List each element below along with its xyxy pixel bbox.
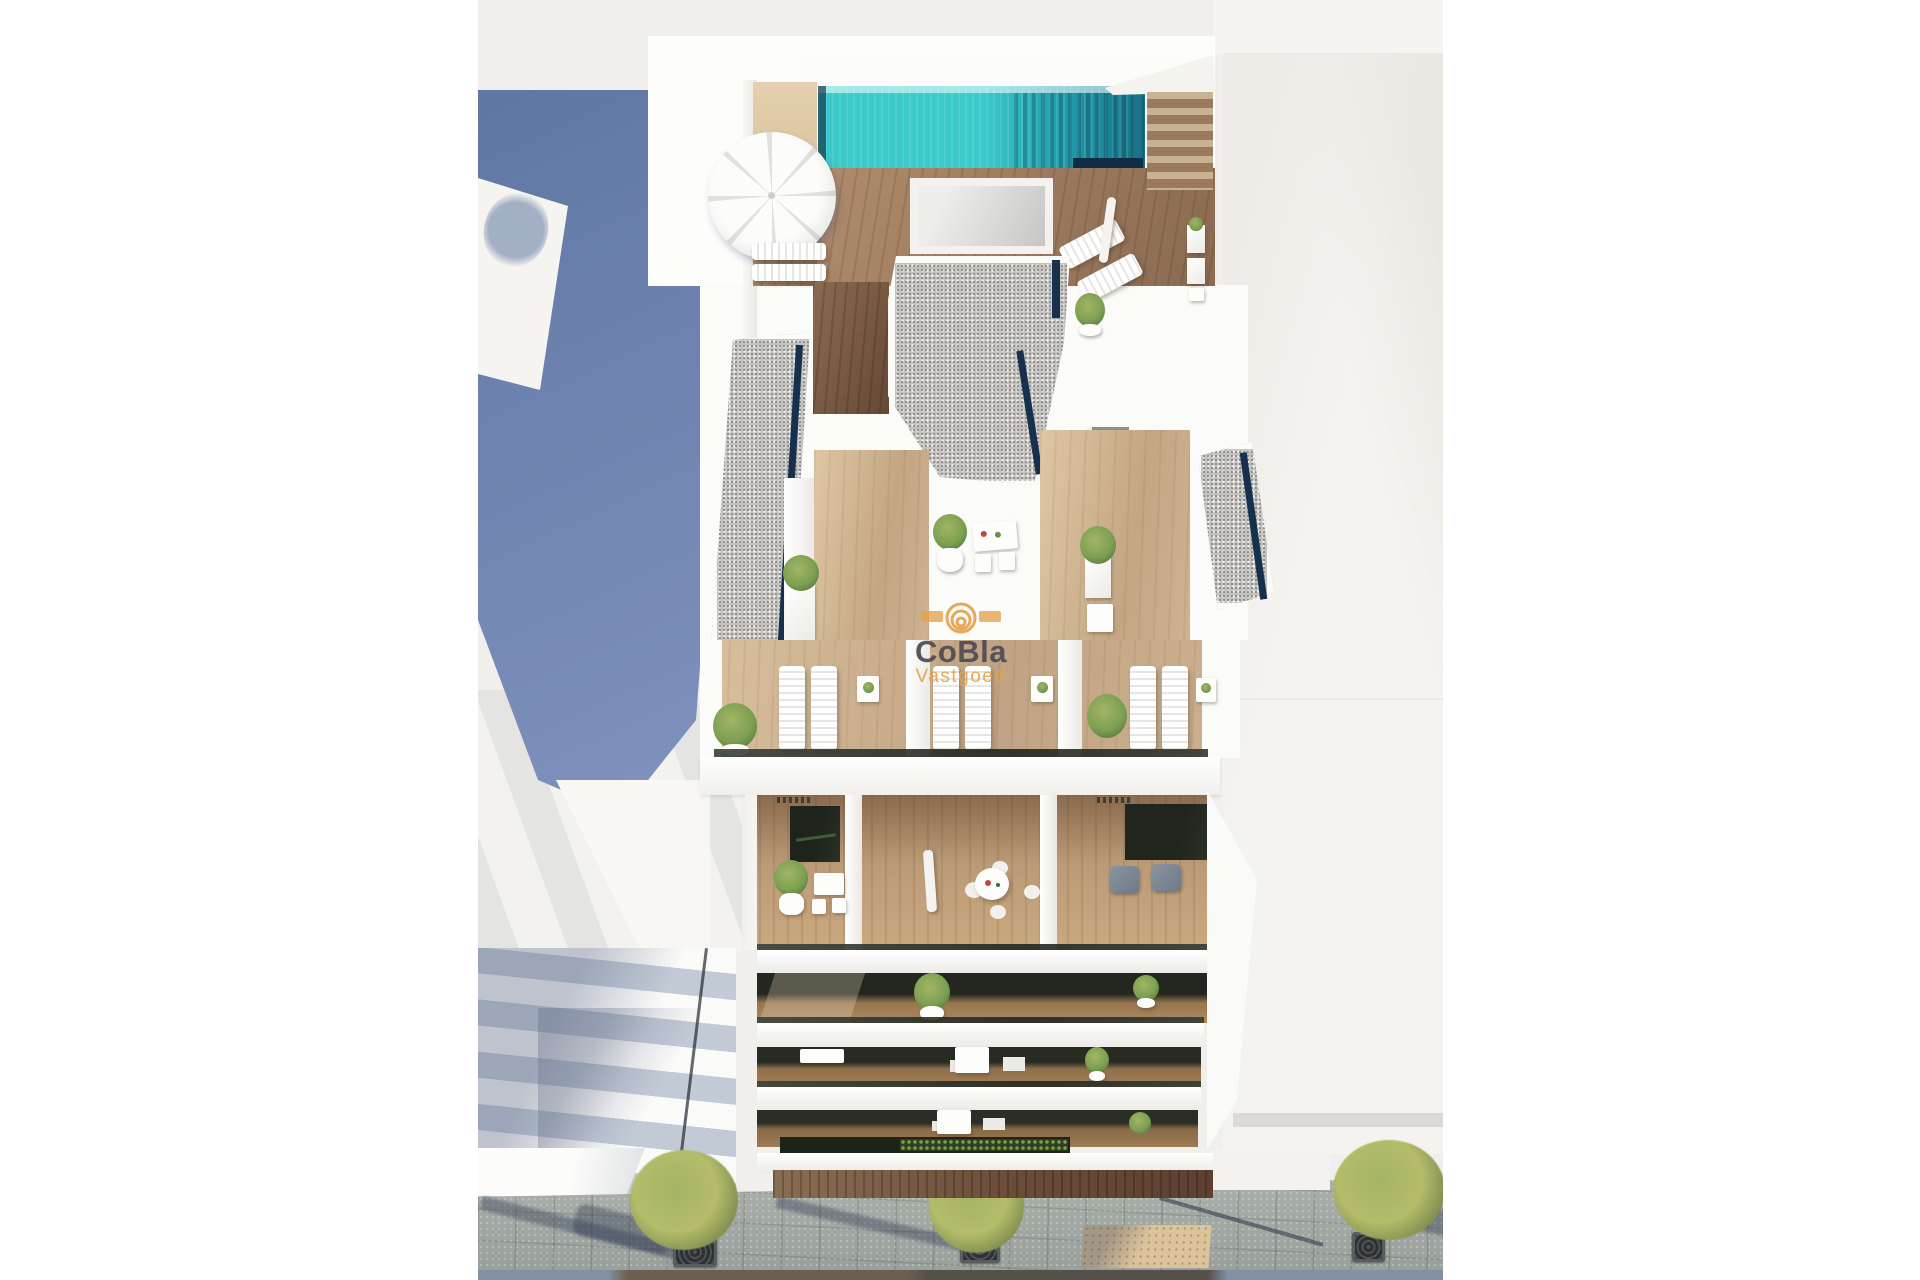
sun-lounger <box>1130 666 1156 750</box>
plant-pot <box>779 893 804 915</box>
adjacent-roof-seam <box>1223 698 1443 700</box>
entrance-slab-right <box>1213 1150 1330 1190</box>
balcony-table-set <box>937 1110 971 1134</box>
plant-pot <box>1089 1071 1105 1081</box>
balcony-chair <box>832 898 846 913</box>
table-plant <box>863 682 874 693</box>
potted-plant <box>1075 293 1105 327</box>
street-tree <box>630 1150 738 1250</box>
glass-door <box>1055 806 1105 862</box>
sun-lounger <box>779 666 805 750</box>
balcony-chair <box>812 899 826 914</box>
tactile-shadow <box>1080 1225 1211 1268</box>
roof-planter <box>1187 258 1205 284</box>
table-plant <box>1201 683 1211 693</box>
terrace-bush <box>713 703 757 749</box>
balcony-left-edge <box>745 795 757 950</box>
adjacent-roof <box>1223 53 1443 1154</box>
watermark-brand: CoBla <box>881 636 1041 667</box>
side-table <box>857 676 879 702</box>
adjacent-bottom-slab <box>478 1148 645 1196</box>
balcony-interior <box>757 973 1207 1023</box>
glass-balustrade <box>714 749 1208 757</box>
corner-plant <box>783 555 819 591</box>
balcony-plant <box>1085 1047 1109 1073</box>
terrace-table <box>972 520 1018 552</box>
balcony-parapet <box>700 757 1220 795</box>
glass-reflection <box>796 833 836 842</box>
hedge <box>900 1139 1068 1151</box>
glass-door <box>1125 804 1213 860</box>
stool <box>1189 288 1204 301</box>
terrace-bush <box>1087 694 1127 738</box>
tactile-paving <box>1080 1225 1211 1268</box>
watermark-subbrand: Vastgoed <box>881 666 1041 688</box>
balcony-vent <box>777 797 813 803</box>
gray-armchair <box>1109 866 1139 893</box>
table-items <box>981 531 988 538</box>
stairwell-skylight <box>910 178 1053 254</box>
balcony-slab <box>757 1023 1204 1047</box>
balcony-plant <box>1129 1112 1151 1134</box>
terrace-plant <box>1080 526 1116 564</box>
watermark: CoBla Vastgoed <box>881 601 1041 688</box>
watermark-logo-icon <box>921 601 1001 635</box>
open-parasol <box>708 132 836 260</box>
corner-planter <box>785 585 815 640</box>
adjacent-roof-street-edge <box>1233 1113 1443 1127</box>
balcony-table-set <box>800 1049 844 1063</box>
balcony-vent <box>1097 797 1133 803</box>
gravel-edge <box>1052 260 1060 318</box>
balcony-plant <box>774 860 808 896</box>
balcony-table <box>814 873 844 895</box>
entrance-soffit-wood <box>773 1170 1213 1198</box>
road <box>478 1270 1443 1280</box>
round-table <box>975 868 1009 900</box>
balcony-slab <box>757 1087 1201 1110</box>
plant-pot <box>1137 998 1155 1008</box>
parasol-pole <box>768 192 775 199</box>
terrace-chair <box>999 552 1015 570</box>
deck-stairs <box>1147 92 1213 190</box>
balcony-table-set <box>955 1047 989 1073</box>
hedge-planter <box>780 1137 1070 1153</box>
terrace-plant <box>933 514 967 550</box>
sun-lounger <box>752 243 826 260</box>
street-tree <box>1333 1140 1443 1240</box>
terrace-chair <box>975 554 991 572</box>
balcony-divider <box>1040 795 1057 950</box>
sun-lounger <box>752 264 826 281</box>
sun-patch <box>759 973 865 1023</box>
glass-door <box>790 806 840 862</box>
side-table <box>1196 678 1216 702</box>
sun-lounger <box>811 666 837 750</box>
gray-armchair <box>1151 864 1181 891</box>
balcony-divider <box>845 795 862 950</box>
plant-pot <box>1079 324 1101 336</box>
table-items <box>985 880 991 886</box>
sun-lounger <box>1162 666 1188 750</box>
building-render: CoBla Vastgoed <box>478 0 1443 1280</box>
upper-walkway <box>813 282 889 414</box>
adjacent-roof-top-band <box>1213 0 1443 55</box>
architectural-render-page: CoBla Vastgoed <box>0 0 1920 1280</box>
pool-waterline <box>818 86 1145 93</box>
terrace-table <box>1087 604 1113 632</box>
plant-pot <box>937 548 963 572</box>
roof-planter <box>1187 225 1205 253</box>
pool-water <box>818 86 1145 178</box>
planter-bush <box>1189 217 1203 231</box>
balcony-slab <box>757 950 1207 973</box>
solarium-divider <box>1058 640 1082 758</box>
